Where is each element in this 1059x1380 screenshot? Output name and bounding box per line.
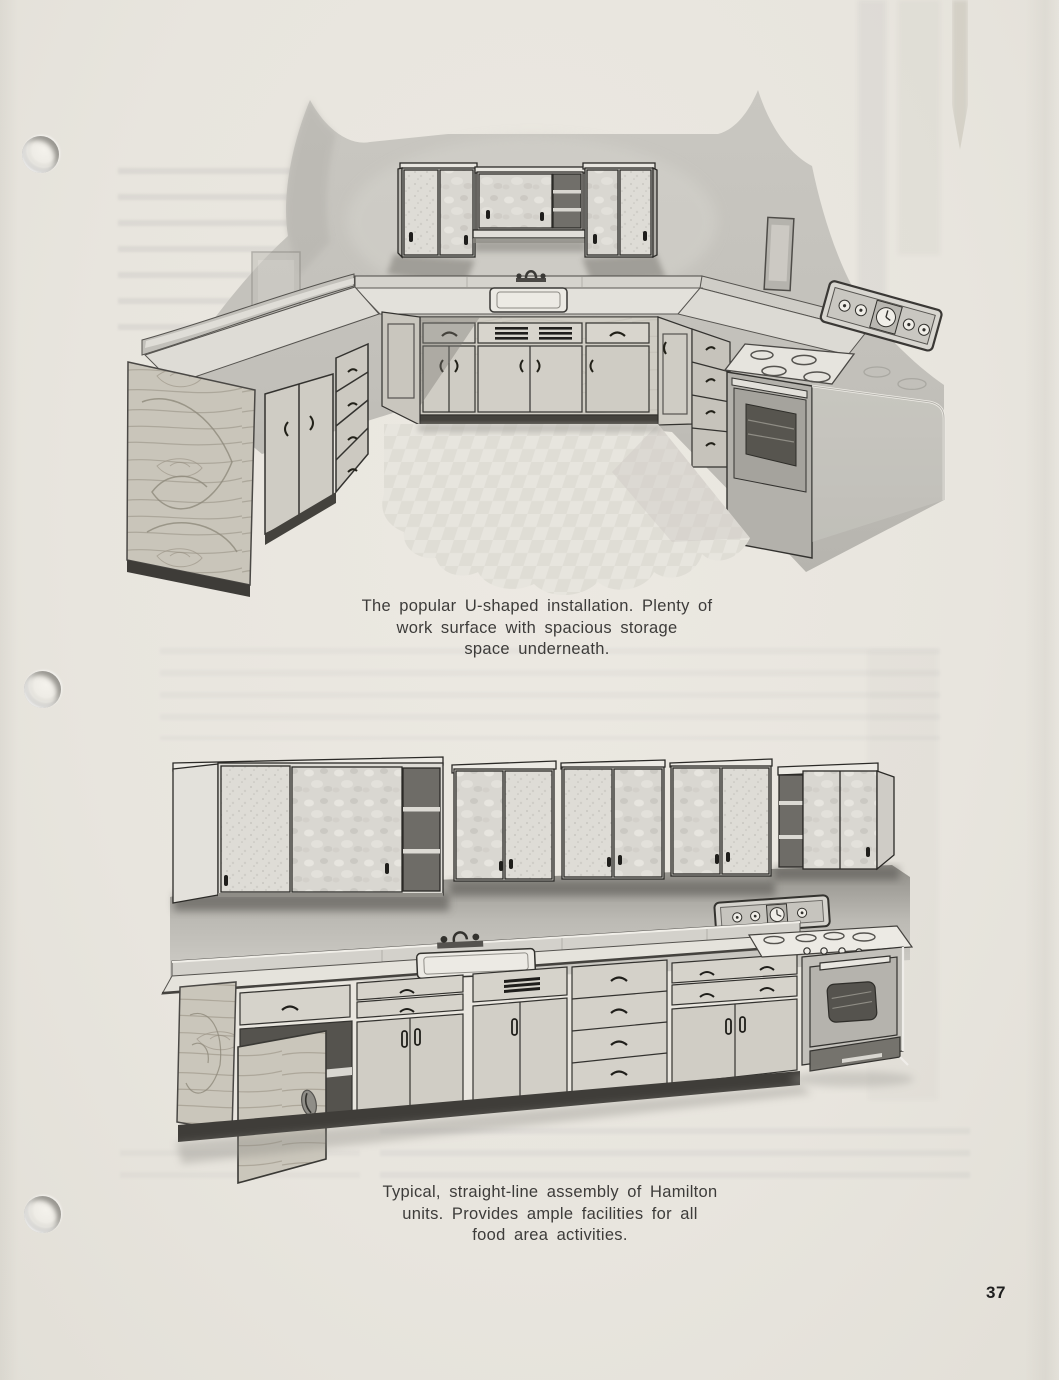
page-number: 37	[986, 1283, 1006, 1303]
u-shaped-kitchen-illustration	[112, 72, 952, 612]
base-cabinets-center	[382, 312, 692, 425]
wall-picture-right	[764, 217, 794, 290]
base-cabinets-right-arm	[692, 329, 730, 467]
punch-hole-bottom	[24, 1196, 61, 1233]
bleed-through-pencil	[952, 0, 968, 150]
punch-hole-middle	[24, 671, 61, 708]
catalog-page: { "page": { "number": "37", "paper_color…	[0, 0, 1059, 1380]
figure-caption-u-shaped: The popular U-shaped installation. Plent…	[287, 596, 787, 661]
figure-caption-straight-line: Typical, straight-line assembly of Hamil…	[300, 1182, 800, 1247]
page-edge-shading	[1025, 0, 1059, 1380]
bleed-through-plan	[160, 648, 940, 740]
base-cabinets	[176, 954, 812, 1183]
page-left-shading	[0, 0, 18, 1380]
straight-line-kitchen-illustration	[152, 735, 922, 1185]
wall-cabinets	[398, 163, 657, 257]
punch-hole-top	[22, 136, 59, 173]
